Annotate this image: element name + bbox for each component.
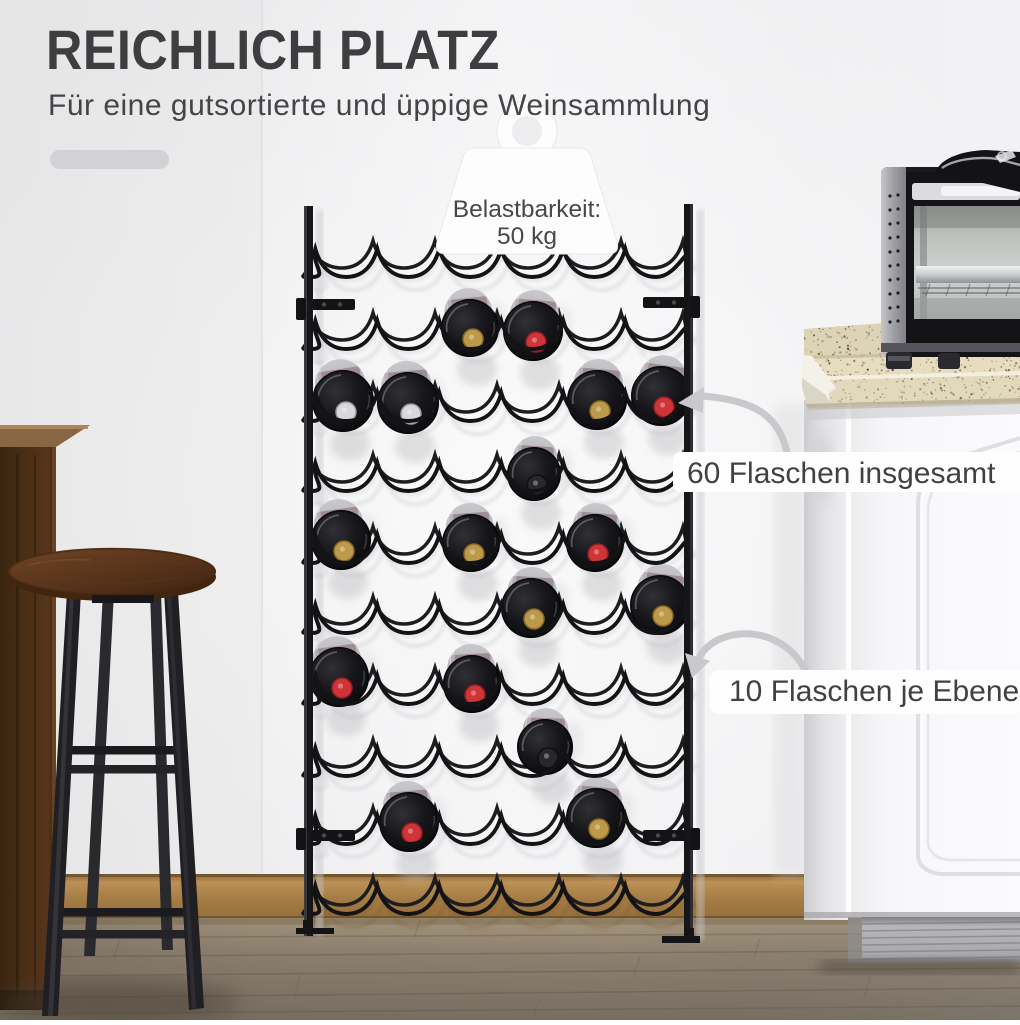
svg-text:Für eine gutsortierte und üppi: Für eine gutsortierte und üppige Weinsam… xyxy=(48,89,710,122)
svg-text:60 Flaschen insgesamt: 60 Flaschen insgesamt xyxy=(687,457,996,490)
svg-text:50 kg: 50 kg xyxy=(497,223,557,250)
svg-text:Belastbarkeit:: Belastbarkeit: xyxy=(453,196,601,223)
svg-text:10 Flaschen je Ebene: 10 Flaschen je Ebene xyxy=(729,675,1019,708)
svg-text:REICHLICH PLATZ: REICHLICH PLATZ xyxy=(46,20,500,82)
